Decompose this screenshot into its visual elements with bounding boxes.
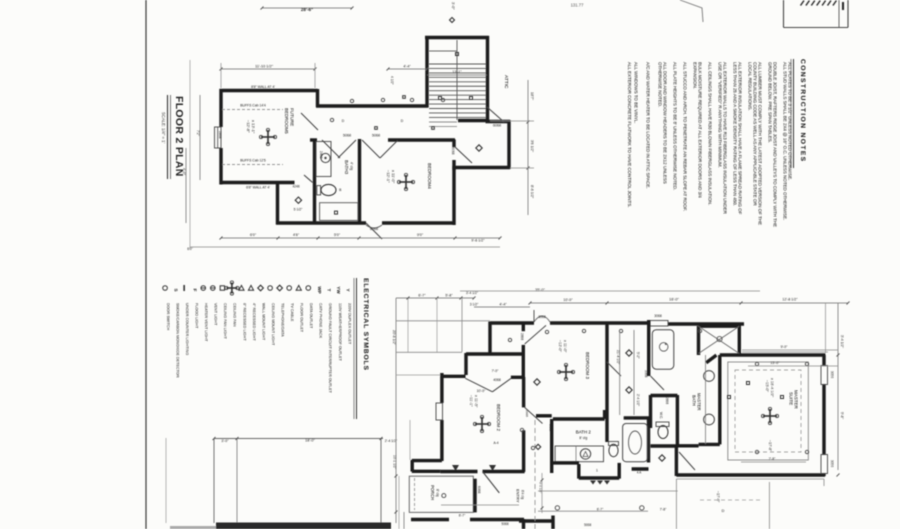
svg-text:ALL CEILINGS SHALL HAVE R30 BL: ALL CEILINGS SHALL HAVE R30 BLOWN FIBERG…	[708, 62, 713, 205]
svg-text:9'-8": 9'-8"	[840, 412, 844, 420]
svg-text:FLOOR 2 PLAN: FLOOR 2 PLAN	[173, 96, 185, 177]
svg-text:EXPANSION.: EXPANSION.	[693, 62, 698, 89]
svg-text:3068: 3068	[549, 424, 553, 431]
svg-text:x 11'-0": x 11'-0"	[563, 340, 567, 353]
svg-text:~12'-8": ~12'-8"	[246, 120, 251, 133]
svg-text:4248: 4248	[292, 185, 299, 189]
svg-text:CATV PHONE JACK: CATV PHONE JACK	[319, 303, 323, 339]
svg-text:6" RECESSED LIGHT: 6" RECESSED LIGHT	[242, 303, 246, 341]
svg-text:6'8" WALL AT 4': 6'8" WALL AT 4'	[246, 186, 270, 190]
svg-text:FLOOR OUTLET: FLOOR OUTLET	[300, 303, 304, 333]
svg-text:CEILING MOUNT LIGHT: CEILING MOUNT LIGHT	[271, 303, 275, 346]
svg-text:3068: 3068	[644, 370, 648, 378]
svg-text:SUITE: SUITE	[789, 392, 794, 405]
svg-text:3068: 3068	[654, 314, 662, 318]
svg-text:16'-0": 16'-0"	[669, 298, 679, 302]
svg-text:S: S	[174, 288, 179, 291]
svg-text:2668: 2668	[665, 397, 669, 404]
svg-text:SMOKE/CARBON MONOXIDE DETECTOR: SMOKE/CARBON MONOXIDE DETECTOR	[175, 303, 179, 378]
svg-text:ALL PLATE HEIGHTS TO BE 8' U: ALL PLATE HEIGHTS TO BE 8' UNLESS OTHERW…	[673, 62, 678, 190]
svg-text:UNDER COUNTER LIGHTING: UNDER COUNTER LIGHTING	[185, 303, 189, 355]
svg-text:6'0": 6'0"	[187, 247, 193, 251]
svg-text:CEILING FAN: CEILING FAN	[233, 303, 237, 327]
svg-text:5068: 5068	[584, 523, 591, 527]
svg-text:5 1/2": 5 1/2"	[294, 208, 304, 212]
svg-text:18'-0": 18'-0"	[305, 439, 315, 443]
svg-text:6'-7": 6'-7"	[459, 514, 466, 518]
svg-text:PORCH: PORCH	[430, 485, 435, 500]
svg-text:FUTURE: FUTURE	[290, 108, 295, 126]
svg-text:7'-8": 7'-8"	[769, 457, 777, 461]
svg-text:ALL WINDOWS TO BE VINYL.: ALL WINDOWS TO BE VINYL.	[634, 62, 639, 123]
svg-text:BEDROOM 3: BEDROOM 3	[585, 352, 590, 380]
svg-text:8' clg: 8' clg	[579, 436, 587, 440]
svg-text:9'-0": 9'-0"	[781, 345, 789, 349]
svg-text:DATA OUTLET: DATA OUTLET	[309, 303, 313, 329]
svg-text:1: 1	[596, 469, 598, 473]
svg-text:6068: 6068	[451, 147, 455, 155]
svg-text:~17'-6": ~17'-6"	[716, 491, 720, 503]
svg-text:35'-0": 35'-0"	[535, 288, 545, 292]
svg-text:6068: 6068	[477, 486, 481, 494]
svg-text:5068: 5068	[501, 522, 508, 526]
svg-text:F: F	[193, 289, 198, 292]
svg-text:10'-0": 10'-0"	[563, 298, 573, 302]
svg-text:DOOR SWITCH: DOOR SWITCH	[166, 303, 170, 331]
svg-text:A/C AND WATER HEATER TO BE LOC: A/C AND WATER HEATER TO BE LOCATED IN AT…	[646, 62, 651, 189]
svg-text:BEDROOM4: BEDROOM4	[427, 163, 432, 189]
svg-text:5'-8": 5'-8"	[445, 294, 453, 298]
svg-text:10'-0": 10'-0"	[477, 389, 486, 393]
svg-text:8' clg: 8' clg	[436, 489, 440, 497]
svg-text:5068: 5068	[372, 134, 380, 138]
svg-text:13'-1": 13'-1"	[452, 70, 462, 74]
svg-text:GROUND BELOW. PRE SPAN TABLES: GROUND BELOW. PRE SPAN TABLES.	[768, 62, 773, 143]
svg-text:4'-4": 4'-4"	[499, 303, 507, 307]
svg-text:2468: 2468	[357, 148, 361, 156]
svg-text:4'-0": 4'-0"	[182, 168, 186, 176]
svg-text:4" RECESSED LIGHT: 4" RECESSED LIGHT	[252, 303, 256, 341]
svg-text:BATH3: BATH3	[344, 160, 349, 175]
svg-text:LOCAL REGULATIONS.: LOCAL REGULATIONS.	[748, 62, 753, 111]
svg-text:7'-0": 7'-0"	[492, 369, 500, 373]
svg-text:WP: WP	[317, 286, 322, 293]
svg-text:7'-8": 7'-8"	[660, 507, 667, 511]
svg-text:3'-0": 3'-0"	[451, 2, 455, 10]
svg-text:10'-1 1/2": 10'-1 1/2"	[393, 455, 397, 470]
svg-text:ELECTRICAL SYMBOLS: ELECTRICAL SYMBOLS	[362, 278, 369, 371]
svg-text:YW: YW	[336, 286, 341, 294]
svg-text:ATTIC: ATTIC	[503, 75, 509, 89]
svg-text:BUFFS Cab 12'5: BUFFS Cab 12'5	[240, 159, 266, 163]
svg-text:6'0": 6'0"	[250, 233, 257, 237]
svg-text:6068: 6068	[370, 227, 378, 231]
svg-text:5'0": 5'0"	[334, 233, 341, 237]
svg-text:21'-4 1/2": 21'-4 1/2"	[616, 350, 620, 365]
svg-text:9'0": 9'0"	[417, 233, 424, 237]
svg-text:CONSTRUCTION NOTES: CONSTRUCTION NOTES	[799, 59, 806, 162]
svg-text:220V DUPLEX OUTLET: 220V DUPLEX OUTLET	[347, 303, 351, 345]
svg-text:BUFFS Cab 14'4: BUFFS Cab 14'4	[240, 104, 266, 108]
svg-text:6'-7": 6'-7"	[418, 294, 426, 298]
svg-text:12'-8 1/2": 12'-8 1/2"	[782, 298, 798, 302]
svg-text:USE OR "VERIFIED" R ANYTHING W: USE OR "VERIFIED" R ANYTHING WITH MINIMU…	[718, 62, 723, 168]
svg-text:CEILING FAN LIGHT: CEILING FAN LIGHT	[223, 303, 227, 340]
svg-text:3 1/2": 3 1/2"	[470, 303, 479, 307]
svg-text:4'-4": 4'-4"	[403, 65, 411, 69]
svg-text:~12'-0": ~12'-0"	[558, 340, 562, 353]
svg-text:D: D	[722, 509, 725, 513]
svg-text:LESS THAN 25 AND A SMOKE DENSI: LESS THAN 25 AND A SMOKE DENSITY RATING …	[733, 62, 738, 206]
svg-text:VENT LIGHT: VENT LIGHT	[214, 303, 218, 326]
svg-text:3'6 1/2": 3'6 1/2"	[530, 140, 534, 153]
svg-text:x 11'-5": x 11'-5"	[474, 395, 478, 408]
svg-text:7'2": 7'2"	[196, 130, 200, 137]
svg-text:OTHERWISE NOTED.: OTHERWISE NOTED.	[658, 62, 663, 107]
svg-text:3050: 3050	[830, 460, 834, 467]
svg-text:BEDROOM5: BEDROOM5	[284, 108, 289, 134]
svg-text:18'7": 18'7"	[530, 92, 534, 101]
svg-text:TV CABLE: TV CABLE	[290, 303, 294, 322]
svg-text:4 1/2": 4 1/2"	[390, 76, 394, 85]
svg-text:3068: 3068	[538, 315, 546, 319]
svg-text:2668: 2668	[525, 410, 529, 417]
svg-text:9'-6 1/2": 9'-6 1/2"	[471, 239, 485, 243]
svg-text:x 13'-1": x 13'-1"	[251, 120, 256, 134]
svg-text:3'-4 1/2": 3'-4 1/2"	[466, 291, 479, 295]
svg-text:11'-10 1/2": 11'-10 1/2"	[255, 65, 273, 69]
svg-text:~17'-8": ~17'-8"	[768, 440, 772, 452]
svg-text:ENTRY: ENTRY	[516, 489, 521, 503]
svg-text:131.77: 131.77	[571, 3, 584, 8]
svg-text:2468: 2468	[319, 151, 323, 159]
svg-text:ALL STUCCO AND ARCH. TO PENET: ALL STUCCO AND ARCH. TO PENETRATE AN REB…	[683, 62, 688, 211]
svg-text:9'-0 1/2": 9'-0 1/2"	[539, 482, 543, 493]
svg-text:8'-6 1/2": 8'-6 1/2"	[530, 185, 534, 199]
svg-text:BEDROOM 2: BEDROOM 2	[496, 404, 501, 432]
svg-text:FLOOD LIGHT: FLOOD LIGHT	[195, 303, 199, 329]
svg-text:6068: 6068	[493, 124, 501, 128]
svg-text:x 16'-4 1/2": x 16'-4 1/2"	[770, 378, 774, 398]
svg-text:6'-7": 6'-7"	[597, 507, 604, 511]
svg-text:WALL MOUNT LIGHT: WALL MOUNT LIGHT	[261, 303, 265, 341]
svg-text:4'6": 4'6"	[293, 233, 300, 237]
svg-text:TELEPHONE/DATA: TELEPHONE/DATA	[280, 303, 284, 337]
svg-text:4068: 4068	[493, 378, 501, 382]
svg-text:28'-6": 28'-6"	[301, 7, 313, 12]
svg-text:~11'-1": ~11'-1"	[469, 395, 473, 407]
svg-text:8'4 clg: 8'4 clg	[521, 490, 525, 499]
svg-text:5'-2": 5'-2"	[636, 352, 640, 359]
svg-text:2868: 2868	[218, 131, 222, 139]
svg-text:ALL EXTERIOR CONCRETE FLATWORK: ALL EXTERIOR CONCRETE FLATWORK TO HAVE C…	[627, 62, 632, 207]
svg-text:A-4: A-4	[494, 441, 499, 445]
svg-text:W.C.: W.C.	[659, 412, 663, 419]
svg-text:3050: 3050	[830, 371, 834, 378]
svg-text:3'-0": 3'-0"	[221, 439, 229, 443]
svg-text:BATH: BATH	[692, 395, 697, 406]
svg-text:HEATER VENT LIGHT: HEATER VENT LIGHT	[204, 303, 208, 342]
svg-text:~15'-0": ~15'-0"	[765, 380, 769, 393]
svg-text:BATH 2: BATH 2	[576, 430, 592, 435]
svg-text:~12'-1": ~12'-1"	[386, 170, 391, 183]
svg-text:8'8" WALL AT 4': 8'8" WALL AT 4'	[251, 85, 275, 89]
svg-text:SCALE: 1/4" = 1': SCALE: 1/4" = 1'	[161, 112, 166, 143]
svg-text:x 11'-0": x 11'-0"	[391, 170, 396, 184]
svg-text:110V WEATHERPROOF OUTLET: 110V WEATHERPROOF OUTLET	[338, 303, 342, 362]
svg-text:ALL STUD WALLS SHALL BE 2X4 @: ALL STUD WALLS SHALL BE 2X4 @ 16" O.C. U…	[783, 62, 788, 220]
svg-text:15'-0": 15'-0"	[770, 361, 780, 365]
svg-text:5068: 5068	[343, 134, 351, 138]
svg-text:T: T	[326, 289, 331, 292]
svg-text:Y: Y	[346, 288, 351, 291]
svg-text:4' clg: 4' clg	[350, 162, 354, 170]
svg-text:GROUND FAULT CIRCUIT INTERRUPT: GROUND FAULT CIRCUIT INTERRUPTER OUTLET	[328, 303, 332, 394]
svg-text:3'-4 1/2": 3'-4 1/2"	[840, 335, 844, 349]
svg-text:2868: 2868	[520, 333, 524, 340]
svg-text:2'-4 1/2": 2'-4 1/2"	[636, 394, 640, 407]
svg-text:20'-8 1/2": 20'-8 1/2"	[392, 330, 396, 346]
